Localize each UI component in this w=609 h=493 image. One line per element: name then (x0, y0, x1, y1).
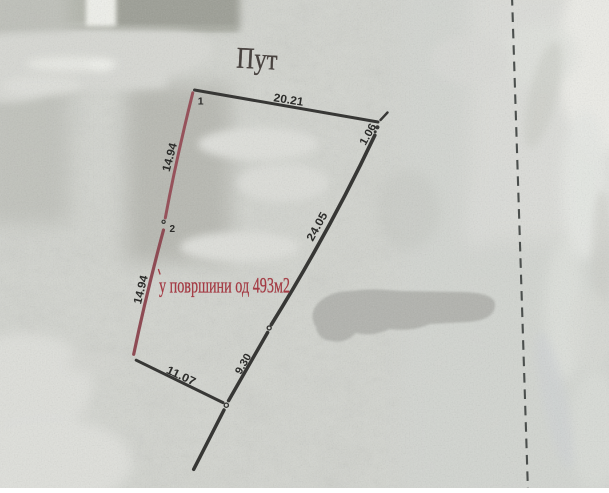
svg-text:у површини од 493м2: у површини од 493м2 (159, 273, 290, 298)
svg-text:Пут: Пут (236, 42, 279, 77)
svg-text:1: 1 (198, 96, 204, 108)
svg-text:2: 2 (170, 224, 176, 235)
